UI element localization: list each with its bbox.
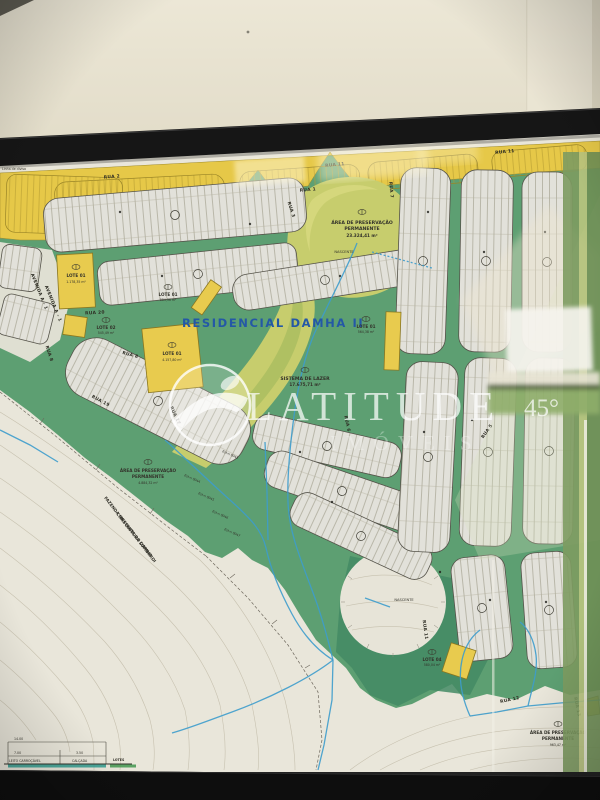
photo-vignette <box>0 0 600 800</box>
framed-site-plan-photo: Linha de divisa RESIDENCIAL DAMHA II ÁRE… <box>0 0 600 800</box>
